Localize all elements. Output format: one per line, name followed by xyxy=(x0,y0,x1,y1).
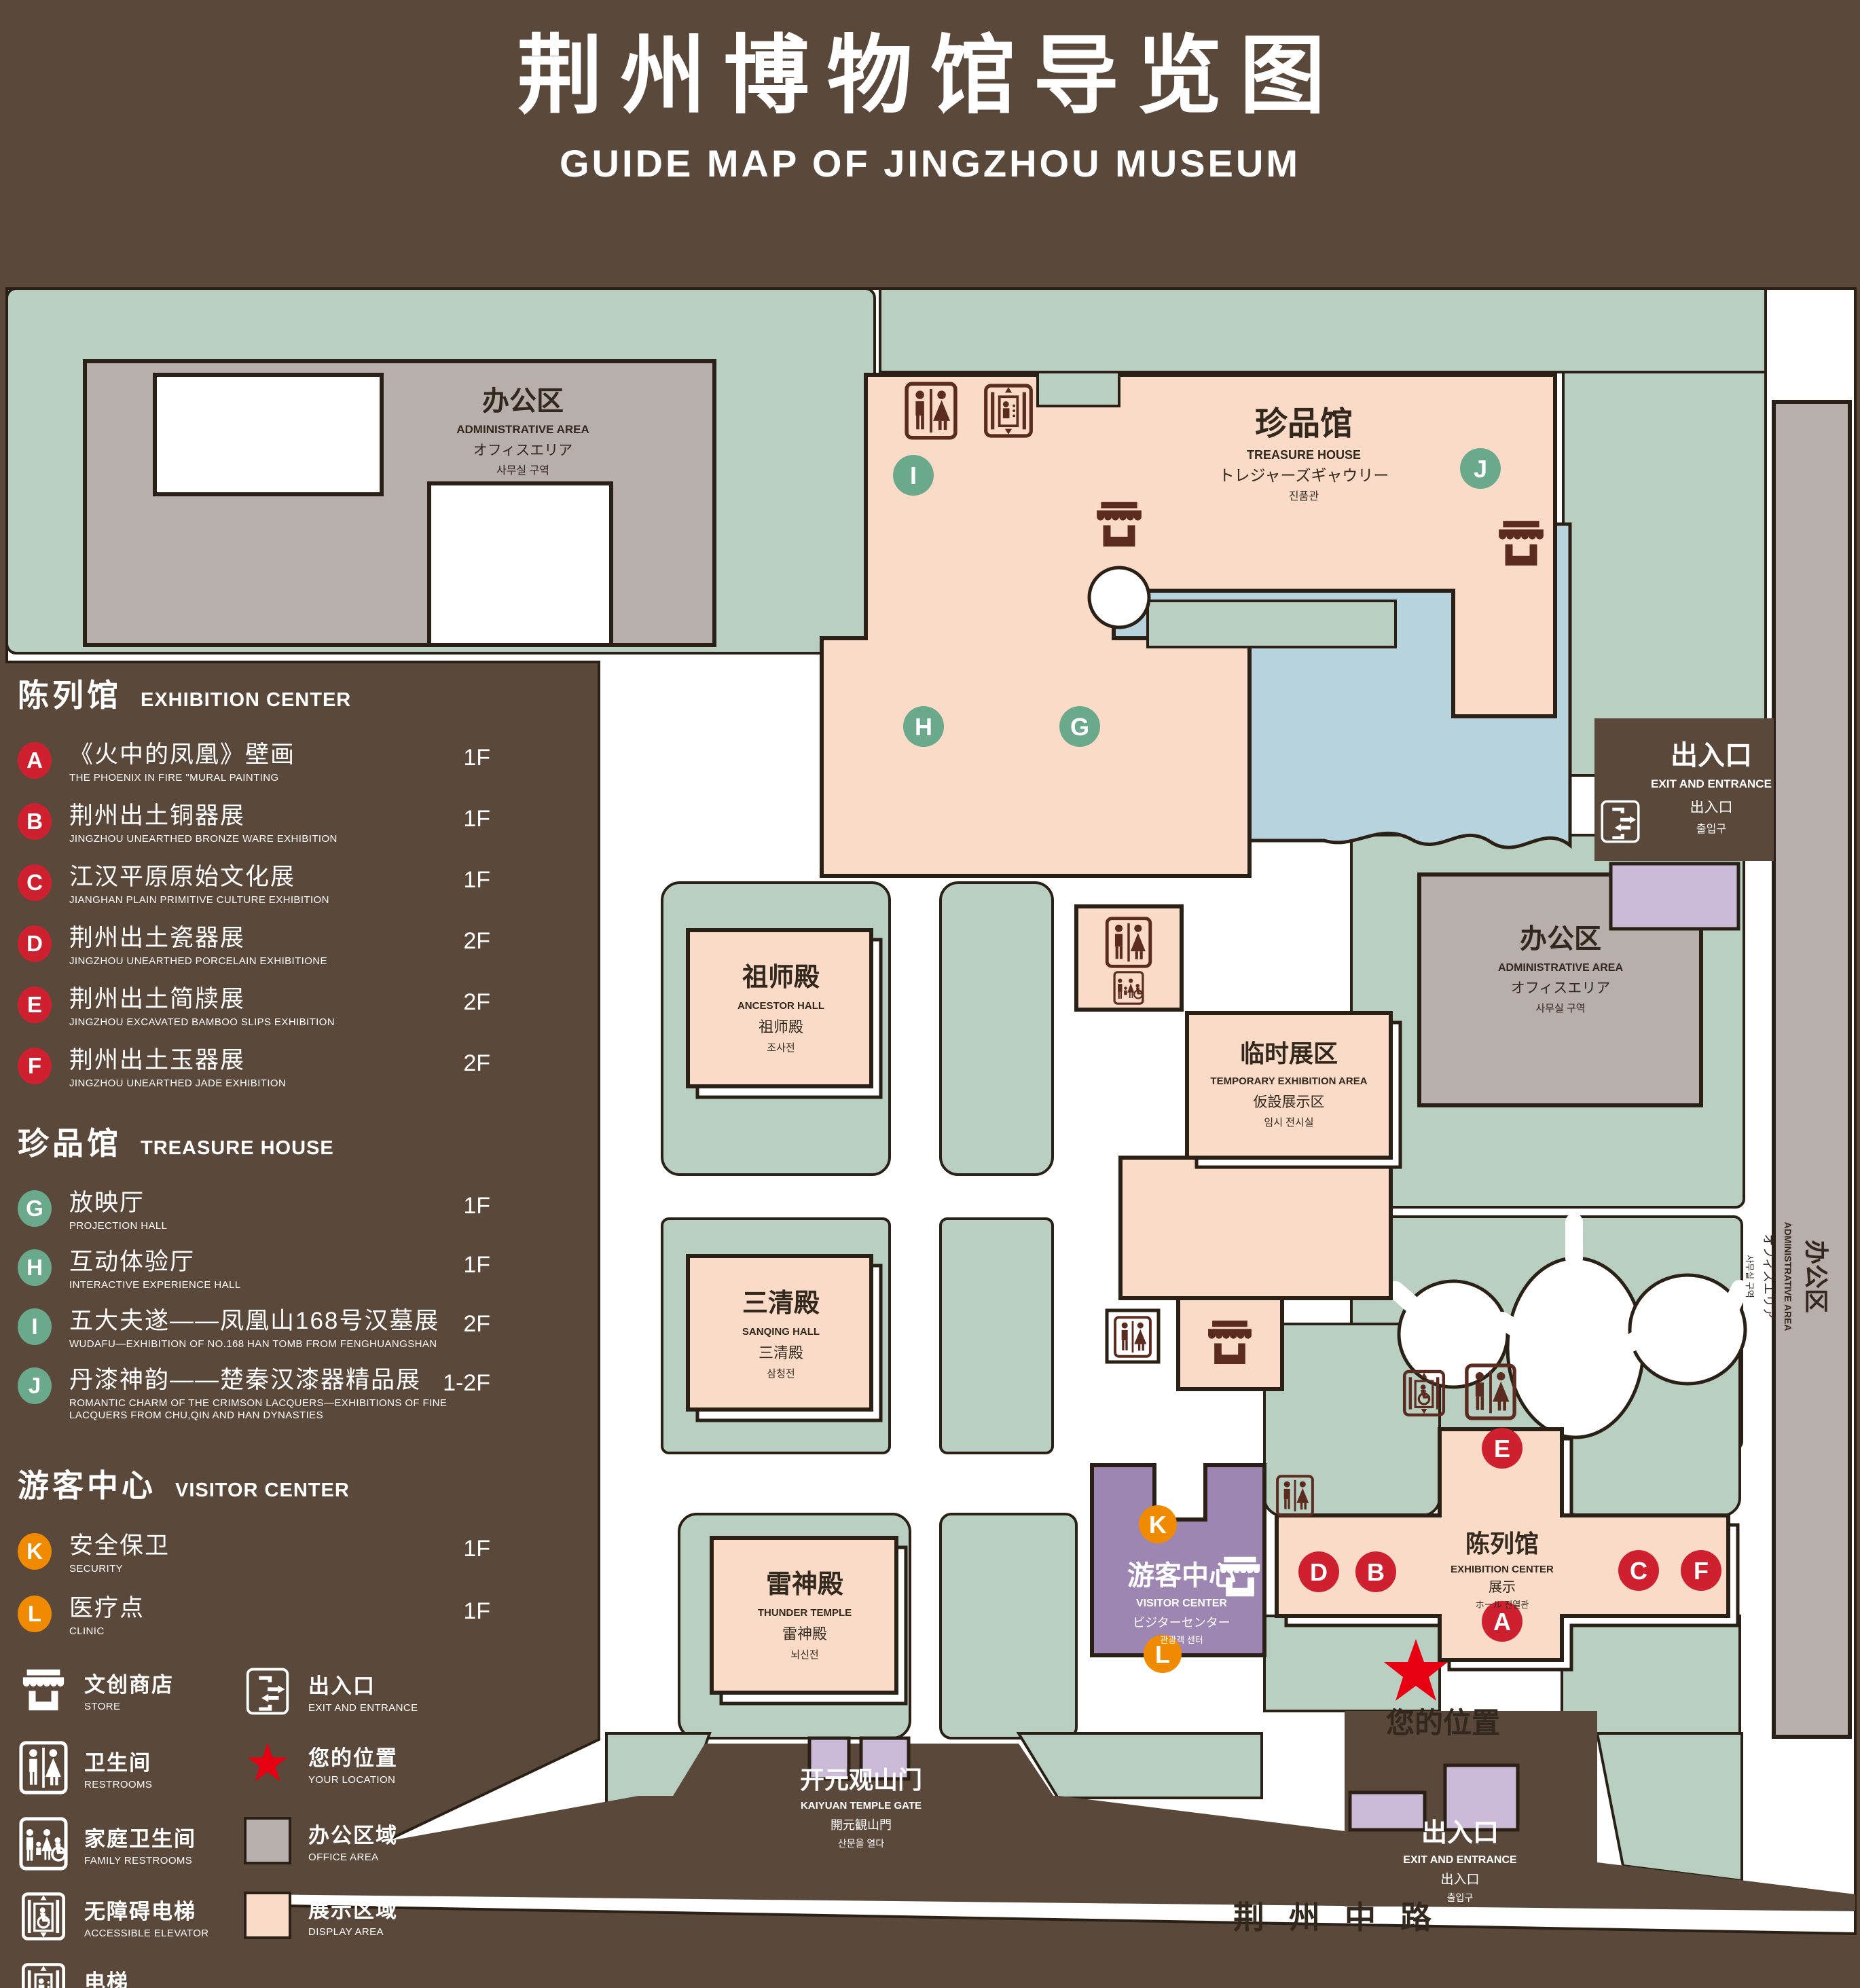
visitor-ko: 관광객 센터 xyxy=(1160,1635,1203,1645)
item-floor: 2F xyxy=(463,1311,490,1338)
item-en: JINGZHOU UNEARTHED BRONZE WARE EXHIBITIO… xyxy=(69,833,450,846)
admin-rc-ja: オフィスエリア xyxy=(1511,980,1611,996)
item-floor: 1F xyxy=(463,867,490,894)
marker-i: I xyxy=(893,455,934,496)
item-zh: 《火中的凤凰》壁画 xyxy=(69,742,493,769)
thunder-en: THUNDER TEMPLE xyxy=(758,1607,852,1619)
exhibition-en: EXHIBITION CENTER xyxy=(1451,1564,1554,1575)
visitor-zh: 游客中心 xyxy=(1127,1561,1236,1591)
item-zh: 放映厅 xyxy=(69,1190,493,1217)
marker-badge-a: A xyxy=(18,742,52,779)
accessible-elevator-icon xyxy=(18,1892,69,1941)
section-title-zh: 珍品馆 xyxy=(18,1119,122,1164)
green-col2-a xyxy=(941,883,1053,1175)
section-title-zh: 陈列馆 xyxy=(18,671,122,716)
location-star-icon xyxy=(242,1742,293,1784)
marker-b: B xyxy=(1355,1551,1396,1592)
temporary-ko: 임시 전시실 xyxy=(1264,1117,1313,1128)
marker-badge-h: H xyxy=(18,1249,52,1286)
item-zh: 五大夫遂——凤凰山168号汉墓展 xyxy=(69,1308,493,1335)
display-area-swatch xyxy=(242,1892,293,1939)
legend-section-exhibition-center: 陈列馆 EXHIBITION CENTER xyxy=(18,671,351,716)
ancestor-ko: 조사전 xyxy=(767,1042,795,1054)
marker-badge-g: G xyxy=(18,1190,52,1227)
gate-purple-right xyxy=(1611,864,1738,929)
ancestor-en: ANCESTOR HALL xyxy=(737,1000,824,1012)
item-floor: 1F xyxy=(463,1252,490,1278)
green-col2-b xyxy=(941,1219,1053,1453)
legend-item-f: F 荆州出土玉器展 JINGZHOU UNEARTHED JADE EXHIBI… xyxy=(18,1048,493,1090)
admin-building-right-strip xyxy=(1774,402,1850,1737)
item-floor: 2F xyxy=(463,989,490,1016)
svg-text:K: K xyxy=(1149,1511,1167,1539)
svg-text:I: I xyxy=(910,462,917,490)
legend-item-g: G 放映厅 PROJECTION HALL 1F xyxy=(18,1190,493,1232)
marker-badge-l: L xyxy=(18,1596,52,1632)
item-en: INTERACTIVE EXPERIENCE HALL xyxy=(69,1279,450,1292)
item-floor: 2F xyxy=(463,1050,490,1077)
legend-item-d: D 荆州出土瓷器展 JINGZHOU UNEARTHED PORCELAIN E… xyxy=(18,925,493,968)
legend-item-c: C 江汉平原原始文化展 JIANGHAN PLAIN PRIMITIVE CUL… xyxy=(18,864,493,906)
svg-text:B: B xyxy=(1367,1558,1385,1586)
marker-badge-b: B xyxy=(18,803,52,840)
restroom-icon xyxy=(18,1741,69,1794)
item-floor: 1F xyxy=(463,1536,490,1562)
item-en: JINGZHOU UNEARTHED PORCELAIN EXHIBITIONE xyxy=(69,955,450,968)
legend-symbol-office-area: 办公区域OFFICE AREA xyxy=(242,1817,398,1864)
item-zh: 荆州出土玉器展 xyxy=(69,1048,493,1074)
svg-text:ADMINISTRATIVE AREA: ADMINISTRATIVE AREA xyxy=(1783,1222,1793,1331)
marker-f: F xyxy=(1681,1550,1721,1591)
marker-k: K xyxy=(1139,1505,1177,1543)
legend-section-visitor-center: 游客中心 VISITOR CENTER xyxy=(18,1461,350,1506)
exit-bottom-zh: 出入口 xyxy=(1421,1819,1499,1847)
green-notch xyxy=(1038,372,1119,406)
item-floor: 1F xyxy=(463,806,490,832)
marker-badge-j: J xyxy=(18,1367,52,1404)
item-zh: 江汉平原原始文化展 xyxy=(69,864,493,891)
svg-text:E: E xyxy=(1494,1435,1510,1462)
temporary-zh: 临时展区 xyxy=(1240,1039,1338,1067)
green-gate-right xyxy=(1019,1733,1262,1798)
poster: 荆州博物馆导览图 GUIDE MAP OF JINGZHOU MUSEUM xyxy=(0,0,1860,1988)
exhibition-ja: 展示 xyxy=(1489,1580,1516,1595)
admin-tl-ja: オフィスエリア xyxy=(473,443,573,458)
legend-section-treasure-house: 珍品馆 TREASURE HOUSE xyxy=(18,1119,334,1164)
legend-symbol-restrooms: 卫生间RESTROOMS xyxy=(18,1741,152,1794)
treasure-zh: 珍品馆 xyxy=(1255,406,1353,442)
item-zh: 互动体验厅 xyxy=(69,1249,493,1276)
admin-tl-en: ADMINISTRATIVE AREA xyxy=(456,423,589,436)
legend-item-b: B 荆州出土铜器展 JINGZHOU UNEARTHED BRONZE WARE… xyxy=(18,803,493,845)
svg-text:A: A xyxy=(1493,1608,1511,1636)
sanqing-zh: 三清殿 xyxy=(742,1289,820,1318)
marker-badge-k: K xyxy=(18,1533,52,1570)
legend-item-l: L 医疗点 CLINIC 1F xyxy=(18,1596,493,1638)
legend-symbol-exit: 出入口EXIT AND ENTRANCE xyxy=(242,1668,418,1715)
section-title-zh: 游客中心 xyxy=(18,1461,156,1506)
legend-panel: 陈列馆 EXHIBITION CENTER A 《火中的凤凰》壁画 THE PH… xyxy=(18,671,497,1985)
ancestor-zh: 祖师殿 xyxy=(742,963,820,992)
item-floor: 1-2F xyxy=(443,1370,490,1397)
exit-right-ko: 출입구 xyxy=(1696,823,1726,835)
gate-ja: 開元観山門 xyxy=(831,1818,892,1832)
exhibition-ko: ホール 진열관 xyxy=(1476,1600,1529,1610)
visitor-en: VISITOR CENTER xyxy=(1136,1598,1227,1609)
legend-symbol-elevator: 电梯Elevator xyxy=(18,1962,129,1988)
legend-item-a: A 《火中的凤凰》壁画 THE PHOENIX IN FIRE "MURAL P… xyxy=(18,742,493,784)
admin-rc-zh: 办公区 xyxy=(1520,924,1601,954)
item-zh: 医疗点 xyxy=(69,1596,493,1622)
admin-rc-ko: 사무실 구역 xyxy=(1535,1003,1585,1014)
marker-badge-c: C xyxy=(18,864,52,901)
item-en: SECURITY xyxy=(69,1563,450,1576)
treasure-ko: 진품관 xyxy=(1289,490,1319,502)
item-en: CLINIC xyxy=(69,1625,450,1638)
item-en: JIANGHAN PLAIN PRIMITIVE CULTURE EXHIBIT… xyxy=(69,894,450,907)
item-floor: 2F xyxy=(463,928,490,955)
temporary-area-extension xyxy=(1120,1158,1391,1298)
item-zh: 丹漆神韵——楚秦汉漆器精品展 xyxy=(69,1367,493,1394)
legend-symbol-accessible-elevator: 无障碍电梯ACCESSIBLE ELEVATOR xyxy=(18,1892,209,1941)
svg-text:D: D xyxy=(1310,1558,1328,1586)
item-zh: 安全保卫 xyxy=(69,1533,493,1560)
elevator-icon xyxy=(18,1962,69,1988)
green-lake-deck xyxy=(1148,601,1396,647)
item-en: JINGZHOU UNEARTHED JADE EXHIBITION xyxy=(69,1078,450,1090)
store-icon xyxy=(18,1668,69,1712)
road-label: 荆州中路 xyxy=(1233,1900,1456,1935)
legend-item-j: J 丹漆神韵——楚秦汉漆器精品展 ROMANTIC CHARM OF THE C… xyxy=(18,1367,493,1422)
admin-building-top-left xyxy=(85,361,714,645)
exit-bottom-zh2: 出入口 xyxy=(1440,1872,1479,1887)
item-en: WUDAFU—EXHIBITION OF NO.168 HAN TOMB FRO… xyxy=(69,1338,450,1351)
marker-badge-e: E xyxy=(18,987,52,1023)
svg-text:C: C xyxy=(1630,1557,1647,1585)
sanqing-ja: 三清殿 xyxy=(759,1344,803,1361)
legend-item-k: K 安全保卫 SECURITY 1F xyxy=(18,1533,493,1575)
svg-text:F: F xyxy=(1694,1557,1709,1585)
marker-badge-d: D xyxy=(18,925,52,962)
admin-tl-zh: 办公区 xyxy=(482,386,564,416)
green-right xyxy=(1563,372,1766,775)
item-en: PROJECTION HALL xyxy=(69,1220,450,1233)
family-restroom-icon xyxy=(18,1817,69,1871)
item-zh: 荆州出土简牍展 xyxy=(69,987,493,1013)
section-title-en: VISITOR CENTER xyxy=(175,1479,350,1502)
item-floor: 1F xyxy=(463,745,490,771)
green-col2-c xyxy=(941,1514,1076,1738)
section-title-en: TREASURE HOUSE xyxy=(141,1137,334,1160)
exit-right-zh: 出入口 xyxy=(1671,741,1752,771)
legend-item-i: I 五大夫遂——凤凰山168号汉墓展 WUDAFU—EXHIBITION OF … xyxy=(18,1308,493,1350)
bridge xyxy=(1089,568,1149,627)
admin-tl-ko: 사무실 구역 xyxy=(496,464,549,477)
exit-right-en: EXIT AND ENTRANCE xyxy=(1651,777,1772,790)
legend-symbol-your-location: 您的位置YOUR LOCATION xyxy=(242,1741,398,1786)
thunder-ko: 뇌신전 xyxy=(790,1649,818,1661)
marker-j: J xyxy=(1460,448,1501,489)
legend-item-h: H 互动体验厅 INTERACTIVE EXPERIENCE HALL 1F xyxy=(18,1249,493,1291)
temporary-ja: 仮設展示区 xyxy=(1254,1094,1325,1110)
marker-badge-f: F xyxy=(18,1048,52,1084)
store-kiosk xyxy=(1178,1298,1282,1389)
admin-rc-en: ADMINISTRATIVE AREA xyxy=(1498,962,1623,974)
title-zh: 荆州博物馆导览图 xyxy=(0,7,1860,130)
marker-e: E xyxy=(1482,1428,1522,1469)
svg-text:J: J xyxy=(1474,455,1487,483)
treasure-ja: トレジャーズギャウリー xyxy=(1219,466,1389,484)
exit-right-zh2: 出入口 xyxy=(1690,800,1733,815)
item-en: JINGZHOU EXCAVATED BAMBOO SLIPS EXHIBITI… xyxy=(69,1016,450,1029)
gate-purple-3 xyxy=(1350,1792,1425,1830)
temporary-en: TEMPORARY EXHIBITION AREA xyxy=(1210,1075,1367,1087)
svg-text:オフィスエリア: オフィスエリア xyxy=(1762,1234,1775,1319)
item-en: ROMANTIC CHARM OF THE CRIMSON LACQUERS—E… xyxy=(69,1397,450,1423)
svg-text:G: G xyxy=(1070,713,1089,741)
sanqing-en: SANQING HALL xyxy=(742,1326,820,1338)
item-floor: 1F xyxy=(463,1598,490,1625)
legend-item-e: E 荆州出土简牍展 JINGZHOU EXCAVATED BAMBOO SLIP… xyxy=(18,987,493,1029)
your-location-label: 您的位置 xyxy=(1386,1707,1500,1739)
marker-d: D xyxy=(1298,1551,1339,1592)
marker-c: C xyxy=(1618,1550,1659,1591)
item-floor: 1F xyxy=(463,1193,490,1219)
thunder-ja: 雷神殿 xyxy=(782,1625,827,1642)
item-zh: 荆州出土铜器展 xyxy=(69,803,493,830)
gate-en: KAIYUAN TEMPLE GATE xyxy=(801,1800,922,1811)
marker-h: H xyxy=(903,706,944,747)
ancestor-ja: 祖师殿 xyxy=(759,1018,803,1035)
svg-text:사무실 구역: 사무실 구역 xyxy=(1745,1255,1755,1297)
gate-ko: 산문을 열다 xyxy=(838,1838,884,1849)
title-en: GUIDE MAP OF JINGZHOU MUSEUM xyxy=(0,141,1860,185)
exit-icon xyxy=(242,1668,293,1715)
gate-zh: 开元观山门 xyxy=(800,1766,922,1794)
exhibition-zh: 陈列馆 xyxy=(1465,1530,1539,1558)
legend-symbol-display-area: 展示区域DISPLAY AREA xyxy=(242,1892,398,1939)
thunder-zh: 雷神殿 xyxy=(766,1570,843,1599)
office-area-swatch xyxy=(242,1817,293,1864)
legend-symbol-store: 文创商店STORE xyxy=(18,1668,174,1712)
marker-g: G xyxy=(1059,706,1100,747)
poster-title: 荆州博物馆导览图 GUIDE MAP OF JINGZHOU MUSEUM xyxy=(0,7,1860,185)
green-top-strip xyxy=(880,289,1766,372)
svg-text:办公区: 办公区 xyxy=(1802,1240,1830,1313)
sanqing-ko: 삼청전 xyxy=(767,1368,795,1380)
treasure-en: TREASURE HOUSE xyxy=(1247,448,1361,462)
section-title-en: EXHIBITION CENTER xyxy=(141,689,351,712)
exit-bottom-en: EXIT AND ENTRANCE xyxy=(1403,1854,1517,1866)
svg-text:H: H xyxy=(915,713,932,741)
visitor-ja: ビジターセンター xyxy=(1133,1616,1230,1630)
item-en: THE PHOENIX IN FIRE "MURAL PAINTING xyxy=(69,772,450,785)
marker-badge-i: I xyxy=(18,1308,52,1345)
legend-symbol-family-restrooms: 家庭卫生间FAMILY RESTROOMS xyxy=(18,1817,196,1871)
item-zh: 荆州出土瓷器展 xyxy=(69,925,493,952)
